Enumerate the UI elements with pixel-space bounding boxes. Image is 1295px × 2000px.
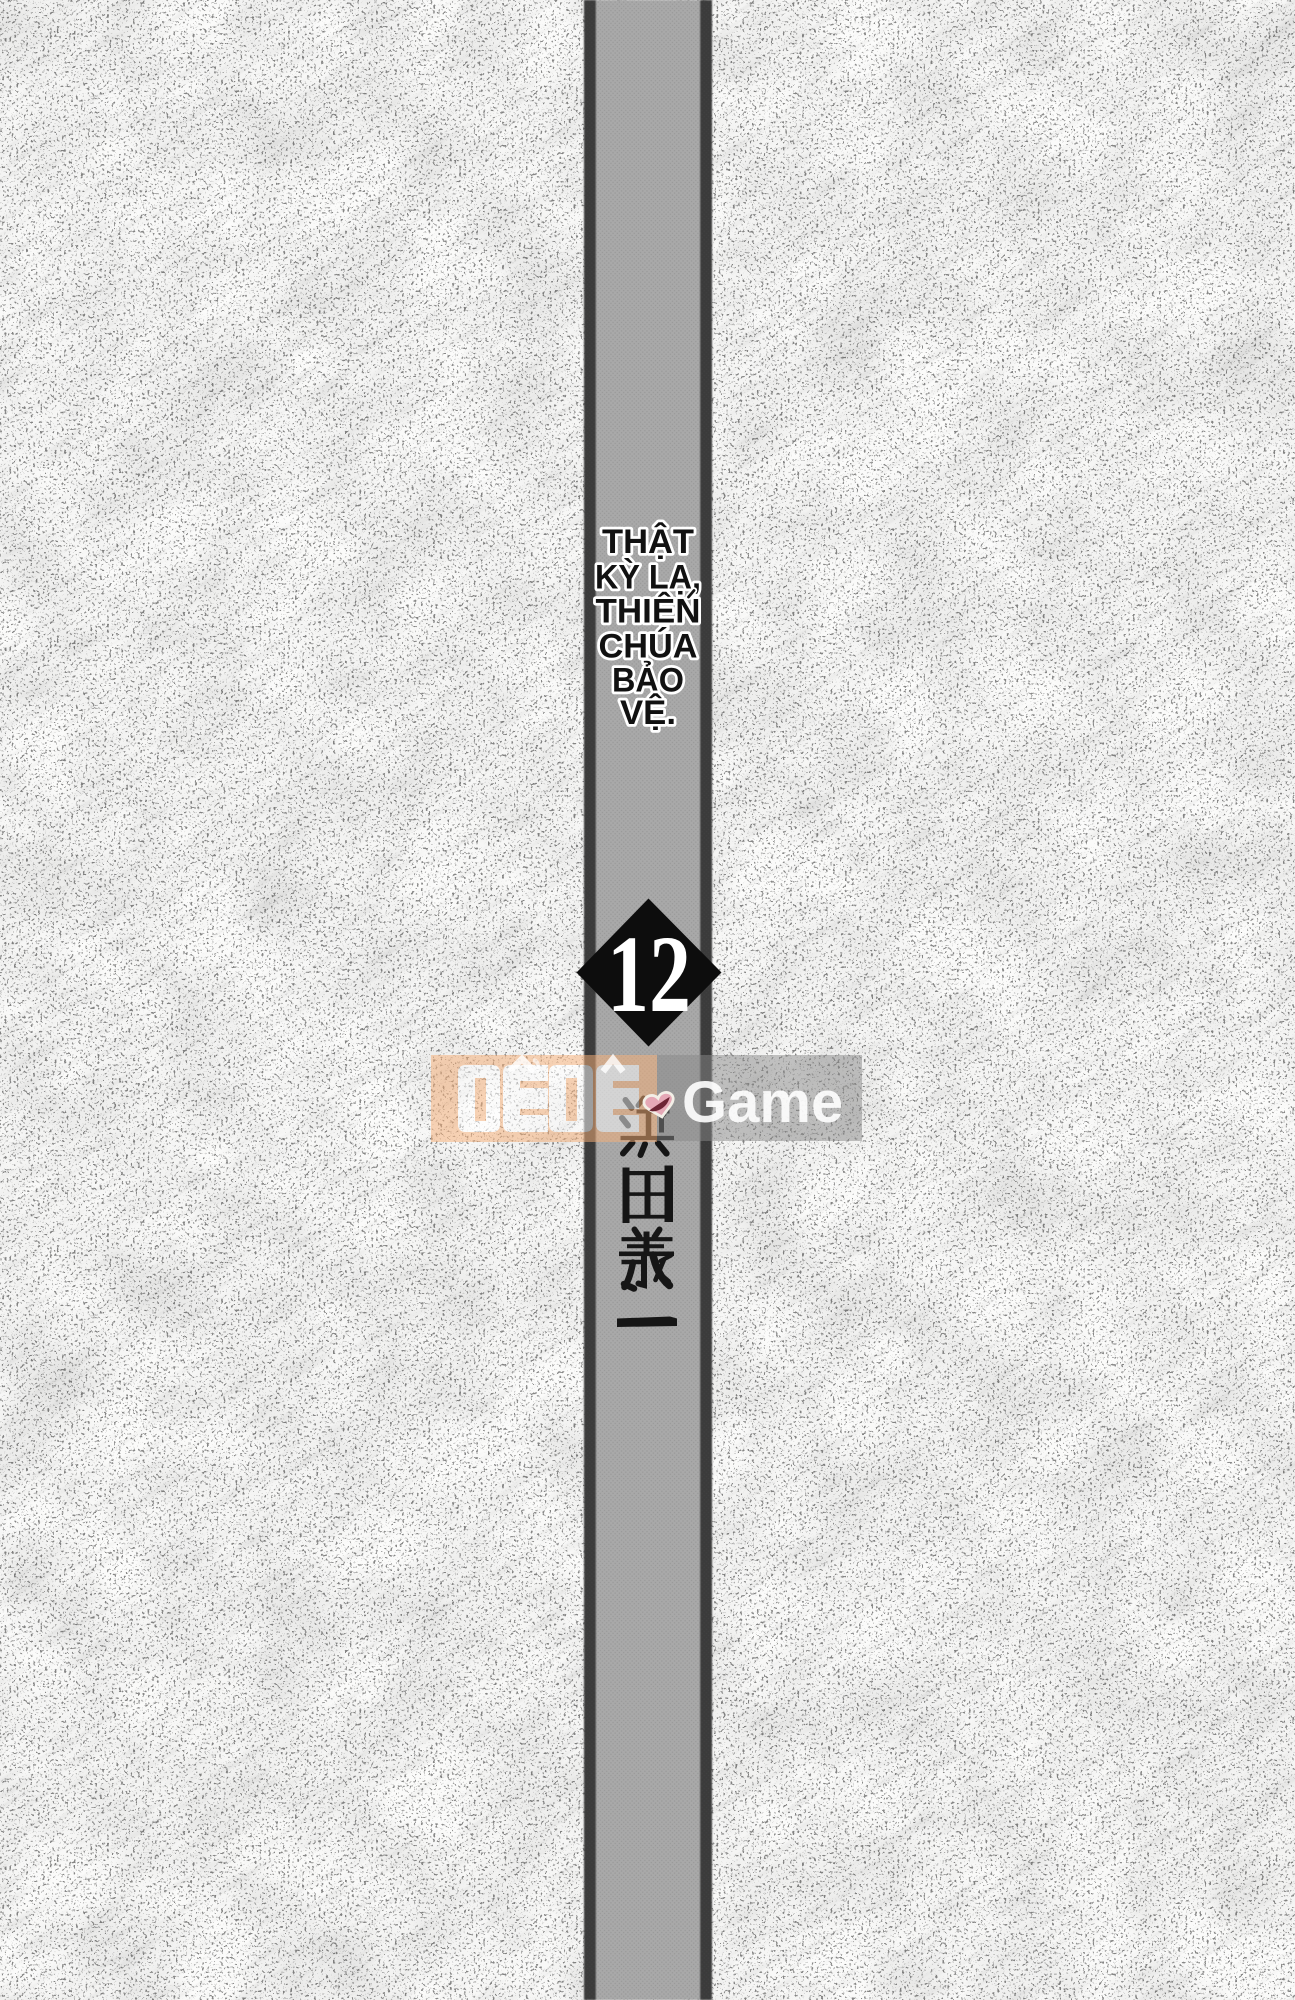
svg-text:THẬT: THẬT	[602, 523, 694, 561]
svg-text:CHÚA: CHÚA	[599, 628, 698, 666]
svg-text:KỲ LẠ,: KỲ LẠ,	[595, 559, 701, 597]
svg-text:THIỆN: THIỆN	[596, 593, 701, 631]
svg-text:Game: Game	[682, 1070, 843, 1135]
svg-text:VỆ.: VỆ.	[620, 694, 676, 732]
svg-text:12: 12	[607, 913, 691, 1035]
